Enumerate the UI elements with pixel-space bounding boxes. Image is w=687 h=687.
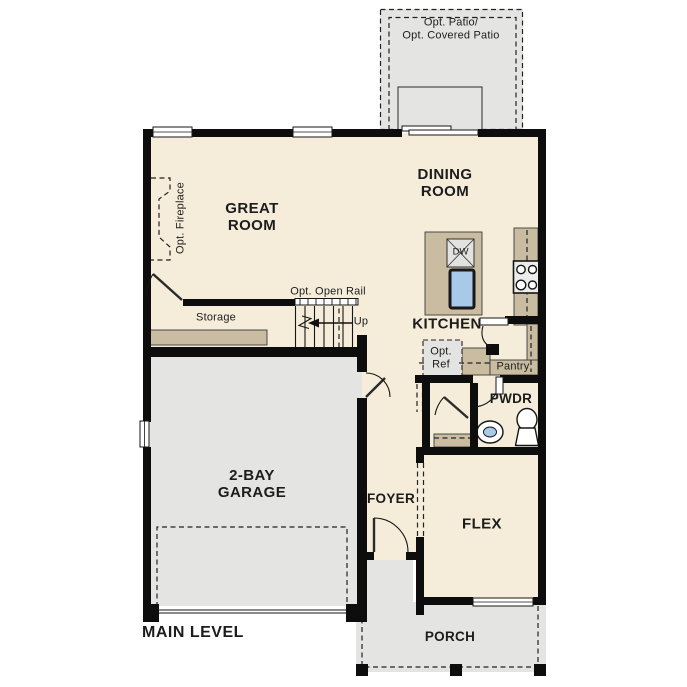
label-dining-room: DINING ROOM — [403, 166, 487, 201]
plan-title: MAIN LEVEL — [142, 624, 244, 642]
kitchen-counter — [514, 228, 541, 325]
label-opt-patio: Opt. Patio/ Opt. Covered Patio — [402, 16, 499, 41]
bathroom-sink — [477, 421, 503, 443]
label-great-room: GREAT ROOM — [209, 200, 295, 235]
floor-plan: Opt. Patio/ Opt. Covered Patio Opt. Fire… — [0, 0, 687, 687]
label-pantry: Pantry — [497, 361, 530, 374]
label-opt-open-rail: Opt. Open Rail — [290, 286, 366, 299]
open-rail — [295, 299, 358, 306]
garage-door — [159, 606, 346, 618]
label-porch: PORCH — [425, 629, 475, 645]
kitchen-island — [425, 232, 482, 315]
island-sink — [450, 270, 474, 308]
floor-plan-drawing — [0, 0, 687, 687]
label-up: Up — [354, 316, 368, 329]
label-storage: Storage — [196, 312, 236, 325]
toilet — [516, 409, 539, 446]
label-opt-ref: Opt. Ref — [430, 345, 452, 370]
label-foyer: FOYER — [367, 491, 415, 507]
storage-shelf — [148, 330, 267, 345]
label-powder: PWDR — [490, 391, 532, 407]
label-kitchen: KITCHEN — [412, 315, 481, 332]
label-dishwasher: DW — [453, 248, 469, 259]
label-flex: FLEX — [462, 515, 502, 532]
label-garage: 2-BAY GARAGE — [205, 467, 300, 502]
label-opt-fireplace: Opt. Fireplace — [175, 182, 188, 254]
closet-shelf — [434, 434, 474, 447]
